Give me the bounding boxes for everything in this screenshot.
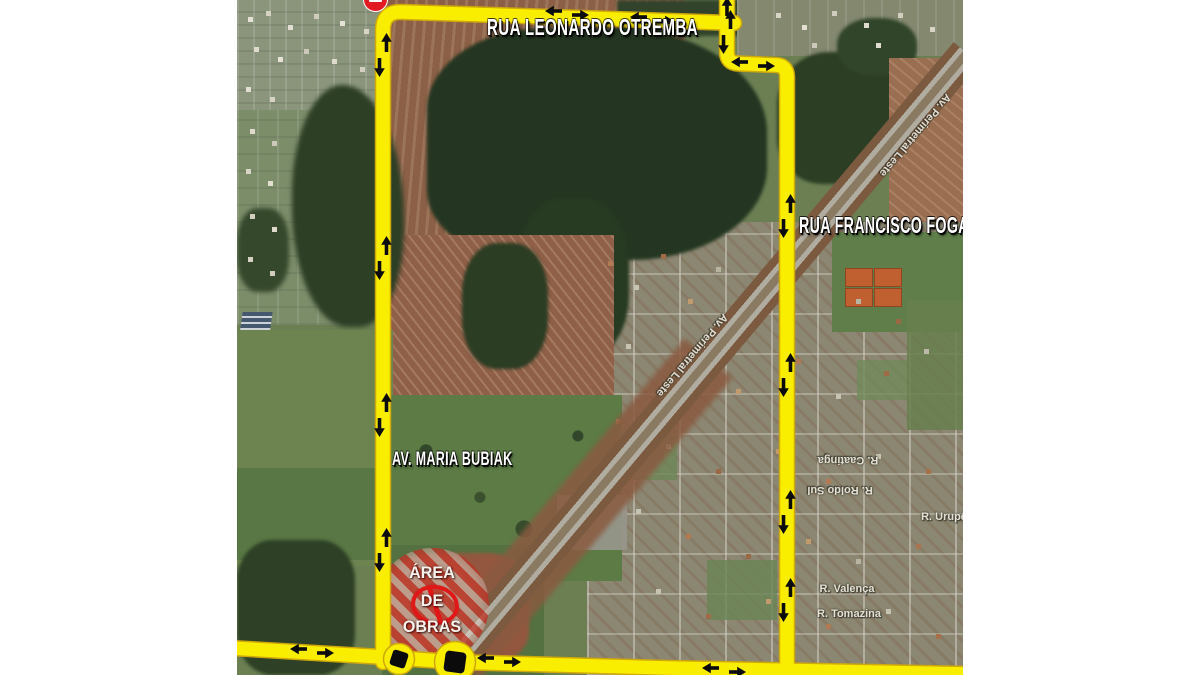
- road-label-right: RUA FRANCISCO FOGAÇA: [799, 214, 963, 237]
- street-label-tomazina: R. Tomazina: [817, 608, 881, 620]
- satellite-map: ÁREA DE OBRAS: [237, 0, 963, 675]
- two-way-arrows: [290, 0, 796, 675]
- street-label-valenca: R. Valença: [819, 583, 874, 595]
- left-white-margin: [0, 0, 237, 675]
- street-label-roldo-sul: R. Roldo Sul: [807, 484, 872, 496]
- right-white-margin: [963, 0, 1200, 675]
- street-label-caatinga: R. Caatinga: [818, 454, 879, 466]
- detour-map-screenshot: ÁREA DE OBRAS: [0, 0, 1200, 675]
- route-east: [727, 0, 787, 674]
- roundabout-island-east: [443, 650, 467, 674]
- road-label-left: AV. MARIA BUBIAK: [392, 450, 512, 469]
- road-label-top: RUA LEONARDO OTREMBA: [487, 16, 698, 39]
- route-overlay: [237, 0, 963, 675]
- route-west-and-north: [383, 12, 734, 662]
- street-label-urupe: R. Urupê: [921, 511, 963, 523]
